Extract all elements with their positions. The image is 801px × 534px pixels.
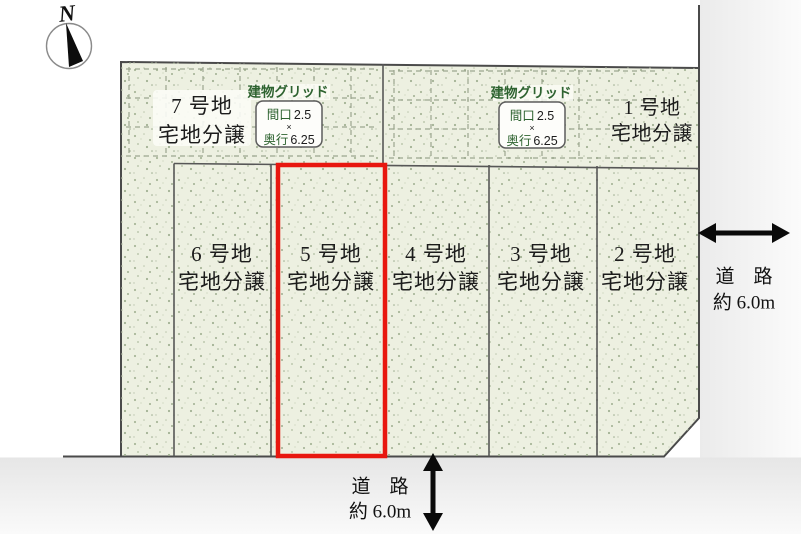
plot-1-name: 1 号地 <box>624 96 681 119</box>
depth-label: 奥行 <box>506 134 531 148</box>
compass-needle-icon <box>66 23 83 67</box>
depth-value: 6.25 <box>290 133 314 147</box>
plot-5-name: 5 号地 <box>300 242 362 266</box>
plot-2-name: 2 号地 <box>614 242 676 266</box>
plot-5-type: 宅地分譲 <box>287 270 375 294</box>
frontage-value: 2.5 <box>537 109 554 123</box>
plot-3-type: 宅地分譲 <box>497 270 585 294</box>
times-sign: × <box>286 122 291 132</box>
plot-4-type: 宅地分譲 <box>392 270 480 294</box>
plot-6-name: 6 号地 <box>191 242 253 266</box>
plot-1-type: 宅地分譲 <box>611 122 693 145</box>
svg-text:間口2.5: 間口2.5 <box>510 109 554 123</box>
road-east-width: 約 6.0m <box>713 292 776 314</box>
road-south-width: 約 6.0m <box>349 501 412 523</box>
frontage-label: 間口 <box>267 108 292 122</box>
depth-label: 奥行 <box>263 133 288 147</box>
building-grid-title-west: 建物グリッド <box>247 84 329 100</box>
svg-text:間口2.5: 間口2.5 <box>267 108 311 122</box>
plot-7-type: 宅地分譲 <box>158 123 246 147</box>
road-south-name: 道 路 <box>351 476 408 498</box>
plot-3-name: 3 号地 <box>510 242 572 266</box>
plot-7-name: 7 号地 <box>171 94 233 118</box>
plot-map: 7 号地 宅地分譲 1 号地 宅地分譲 6 号地 宅地分譲 5 号地 宅地分譲 … <box>0 0 801 534</box>
building-grid-callout-east: 建物グリッド 間口2.5 × 奥行6.25 <box>490 85 572 149</box>
road-east-name: 道 路 <box>715 266 772 288</box>
building-grid-title-east: 建物グリッド <box>490 85 572 101</box>
north-compass: N <box>47 0 92 68</box>
plot-4-name: 4 号地 <box>405 242 467 266</box>
plot-6-type: 宅地分譲 <box>178 270 266 294</box>
times-sign: × <box>529 123 534 133</box>
frontage-value: 2.5 <box>294 108 311 122</box>
building-grid-callout-west: 建物グリッド 間口2.5 × 奥行6.25 <box>247 84 329 148</box>
depth-value: 6.25 <box>533 134 557 148</box>
frontage-label: 間口 <box>510 109 535 123</box>
plot-2-type: 宅地分譲 <box>601 270 689 294</box>
